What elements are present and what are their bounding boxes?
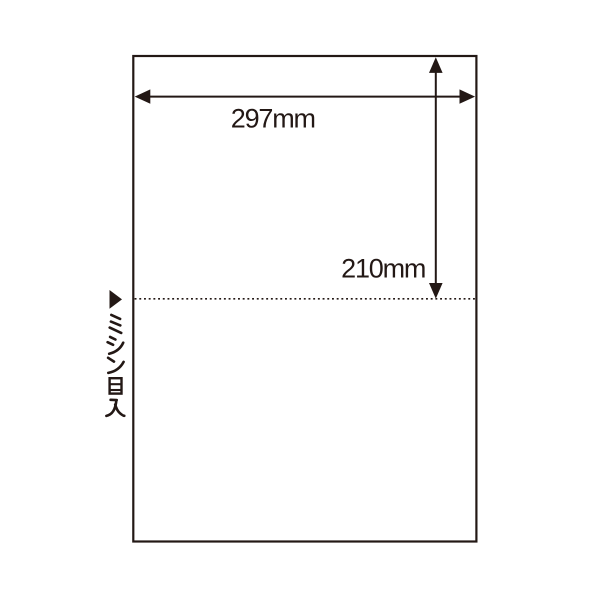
svg-text:297mm: 297mm (231, 104, 315, 134)
svg-text:210mm: 210mm (341, 254, 425, 284)
